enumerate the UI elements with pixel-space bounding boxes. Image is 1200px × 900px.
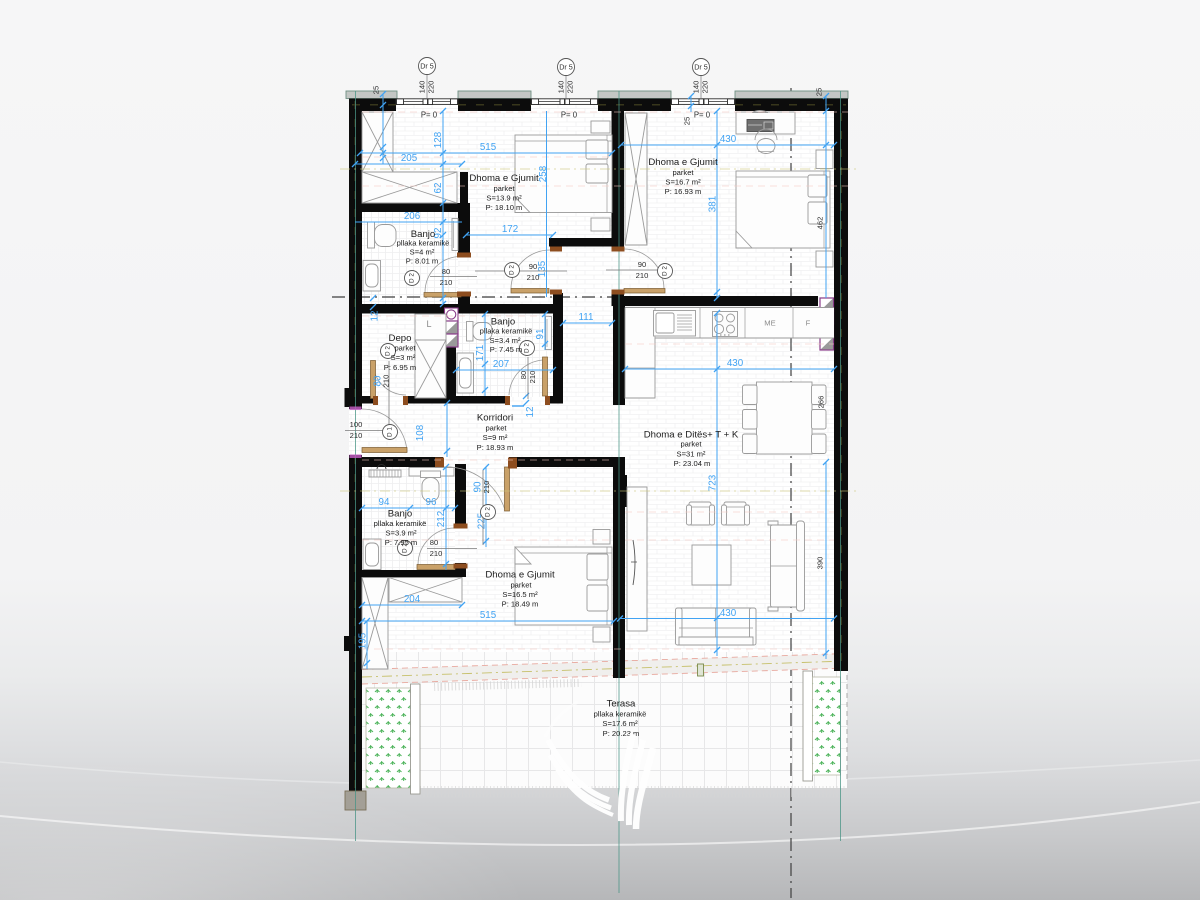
- svg-text:210: 210: [350, 431, 363, 440]
- svg-text:Terasa: Terasa: [607, 699, 636, 710]
- svg-text:parket: parket: [672, 168, 694, 177]
- svg-text:pllaka keramikë: pllaka keramikë: [397, 239, 450, 248]
- svg-text:P: 18.10 m: P: 18.10 m: [486, 203, 523, 212]
- svg-text:515: 515: [480, 610, 497, 621]
- svg-text:D 2: D 2: [509, 265, 516, 275]
- svg-text:Depo: Depo: [389, 333, 412, 344]
- svg-text:90: 90: [529, 262, 537, 271]
- svg-text:P= 0: P= 0: [561, 111, 578, 120]
- svg-text:207: 207: [493, 359, 509, 370]
- svg-text:206: 206: [404, 211, 421, 222]
- svg-text:ME: ME: [764, 319, 775, 328]
- svg-text:210: 210: [528, 371, 537, 384]
- svg-text:P: 18.93 m: P: 18.93 m: [477, 443, 514, 452]
- svg-text:S=16.7 m²: S=16.7 m²: [665, 178, 701, 187]
- svg-text:205: 205: [401, 153, 418, 164]
- svg-text:P: 7.45 m: P: 7.45 m: [490, 345, 523, 354]
- svg-text:210: 210: [527, 273, 540, 282]
- svg-text:Dr 5: Dr 5: [420, 62, 434, 71]
- svg-text:P= 0: P= 0: [694, 111, 711, 120]
- svg-text:D 2: D 2: [485, 507, 492, 517]
- svg-text:100: 100: [350, 420, 363, 429]
- svg-text:S=3.4 m²: S=3.4 m²: [489, 336, 520, 345]
- svg-text:111: 111: [579, 312, 594, 323]
- svg-text:pllaka keramikë: pllaka keramikë: [374, 519, 427, 528]
- svg-text:462: 462: [816, 217, 825, 230]
- svg-text:430: 430: [720, 608, 737, 619]
- svg-text:S=17.6 m²: S=17.6 m²: [602, 719, 638, 728]
- svg-text:80: 80: [519, 371, 528, 379]
- svg-text:S=3.9 m²: S=3.9 m²: [385, 529, 416, 538]
- svg-text:266: 266: [817, 396, 826, 409]
- svg-text:12: 12: [525, 407, 536, 418]
- svg-text:210: 210: [440, 278, 453, 287]
- svg-text:Banjo: Banjo: [388, 509, 413, 520]
- svg-text:381: 381: [708, 196, 719, 212]
- svg-text:P: 6.95 m: P: 6.95 m: [384, 363, 417, 372]
- svg-text:S=13.9 m²: S=13.9 m²: [486, 194, 522, 203]
- svg-text:P: 7.95 m: P: 7.95 m: [385, 538, 418, 547]
- svg-text:195: 195: [358, 632, 369, 649]
- svg-text:220: 220: [701, 81, 710, 94]
- svg-text:D 1: D 1: [387, 427, 394, 437]
- svg-text:P= 0: P= 0: [421, 111, 438, 120]
- svg-text:723: 723: [708, 474, 719, 491]
- svg-text:P: 8.01 m: P: 8.01 m: [406, 257, 439, 266]
- svg-text:430: 430: [720, 134, 737, 145]
- svg-text:258: 258: [538, 165, 549, 182]
- svg-text:parket: parket: [510, 581, 532, 590]
- svg-text:140: 140: [418, 81, 427, 94]
- svg-text:pllaka keramikë: pllaka keramikë: [594, 710, 647, 719]
- svg-text:P: 18.49 m: P: 18.49 m: [502, 600, 539, 609]
- svg-text:F: F: [806, 319, 811, 328]
- svg-text:pllaka keramikë: pllaka keramikë: [480, 327, 533, 336]
- svg-text:140: 140: [692, 81, 701, 94]
- svg-text:S=9 m²: S=9 m²: [483, 433, 508, 442]
- svg-text:430: 430: [727, 358, 744, 369]
- svg-text:94: 94: [379, 497, 390, 508]
- svg-text:12: 12: [370, 311, 381, 322]
- svg-text:P: 16.93 m: P: 16.93 m: [665, 187, 702, 196]
- svg-text:80: 80: [442, 267, 450, 276]
- svg-text:S=4 m²: S=4 m²: [410, 248, 435, 257]
- svg-text:171: 171: [475, 345, 486, 361]
- svg-text:Dhoma e Gjumit: Dhoma e Gjumit: [485, 570, 555, 581]
- svg-text:210: 210: [430, 549, 443, 558]
- svg-text:108: 108: [415, 424, 426, 441]
- svg-text:parket: parket: [394, 344, 416, 353]
- svg-text:P: 23.04 m: P: 23.04 m: [674, 459, 711, 468]
- svg-text:D 2: D 2: [409, 273, 416, 283]
- svg-text:515: 515: [480, 142, 497, 153]
- svg-text:D 2: D 2: [524, 343, 531, 353]
- svg-text:Dhoma e Gjumit: Dhoma e Gjumit: [469, 173, 539, 184]
- svg-text:parket: parket: [680, 440, 702, 449]
- svg-text:S=31 m²: S=31 m²: [677, 450, 706, 459]
- svg-text:25: 25: [815, 88, 824, 96]
- svg-text:91: 91: [535, 329, 546, 340]
- svg-text:25: 25: [372, 86, 381, 94]
- svg-text:parket: parket: [485, 424, 507, 433]
- svg-text:Korridori: Korridori: [477, 413, 513, 424]
- svg-text:212: 212: [436, 511, 447, 527]
- svg-text:S=3 m²: S=3 m²: [391, 353, 416, 362]
- svg-text:Dr 5: Dr 5: [559, 63, 573, 72]
- svg-text:204: 204: [404, 594, 421, 605]
- svg-text:S=16.5 m²: S=16.5 m²: [502, 590, 538, 599]
- svg-text:62: 62: [433, 183, 444, 194]
- svg-text:25: 25: [683, 117, 692, 125]
- svg-text:390: 390: [816, 557, 825, 570]
- svg-text:Dhoma e Gjumit: Dhoma e Gjumit: [648, 157, 718, 168]
- svg-text:140: 140: [557, 81, 566, 94]
- svg-text:220: 220: [566, 81, 575, 94]
- svg-text:80: 80: [430, 538, 438, 547]
- svg-text:96: 96: [426, 497, 437, 508]
- svg-text:90: 90: [638, 260, 646, 269]
- svg-text:parket: parket: [493, 184, 515, 193]
- svg-text:172: 172: [502, 224, 518, 235]
- svg-text:Dr 5: Dr 5: [694, 63, 708, 72]
- svg-text:L: L: [426, 319, 431, 329]
- svg-text:210: 210: [636, 271, 649, 280]
- svg-text:128: 128: [433, 131, 444, 148]
- svg-text:220: 220: [427, 81, 436, 94]
- svg-text:D 2: D 2: [662, 266, 669, 276]
